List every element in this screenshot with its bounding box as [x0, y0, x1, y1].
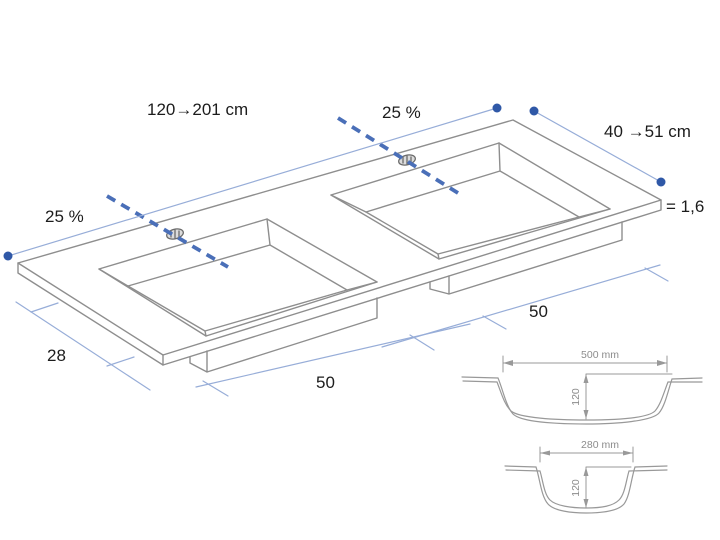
- dim-dot: [657, 178, 666, 187]
- dim-dot: [493, 104, 502, 113]
- length-dimension-label: 120→201 cm: [147, 100, 248, 119]
- faucet-axis-dashed-line-right: [338, 118, 458, 193]
- depth-dimension-label: 40 →51 cm: [604, 122, 691, 141]
- section-500-width-label: 500 mm: [581, 349, 619, 361]
- dim-dot: [4, 252, 13, 261]
- front-depth-label: 28: [47, 346, 66, 365]
- left-slope-label: 25 %: [45, 207, 84, 226]
- depth-28-dimension-line: [16, 302, 150, 390]
- right-width-label: 50: [529, 302, 548, 321]
- cross-section-280mm: 280 mm 120: [505, 439, 667, 513]
- countertop-isometric: [18, 120, 661, 372]
- drawing-canvas: 120→201 cm 25 % 25 % 40 →51 cm = 1,6 28 …: [0, 0, 720, 540]
- thickness-label: = 1,6: [666, 197, 704, 216]
- left-basin-underside: [190, 298, 377, 372]
- length-dimension-line: [8, 108, 497, 256]
- dim-dot: [530, 107, 539, 116]
- section-280-depth-label: 120: [570, 479, 582, 497]
- faucet-axis-lines: [107, 118, 458, 267]
- left-basin: [99, 219, 377, 336]
- dimension-lines: [8, 108, 668, 396]
- cross-section-500mm: 500 mm 120: [462, 349, 702, 424]
- dimension-endpoint-dots: [4, 104, 666, 261]
- slab-top-face: [18, 120, 661, 365]
- section-500-profile: [462, 377, 702, 424]
- section-500-depth-label: 120: [570, 388, 582, 406]
- top-slope-label: 25 %: [382, 103, 421, 122]
- right-basin-underside: [430, 222, 622, 294]
- bottom-width-label: 50: [316, 373, 335, 392]
- vanity-top-technical-drawing: 120→201 cm 25 % 25 % 40 →51 cm = 1,6 28 …: [0, 0, 720, 540]
- section-280-depth-dimension: [584, 467, 632, 508]
- section-280-width-label: 280 mm: [581, 439, 619, 451]
- section-500-depth-dimension: [584, 374, 673, 419]
